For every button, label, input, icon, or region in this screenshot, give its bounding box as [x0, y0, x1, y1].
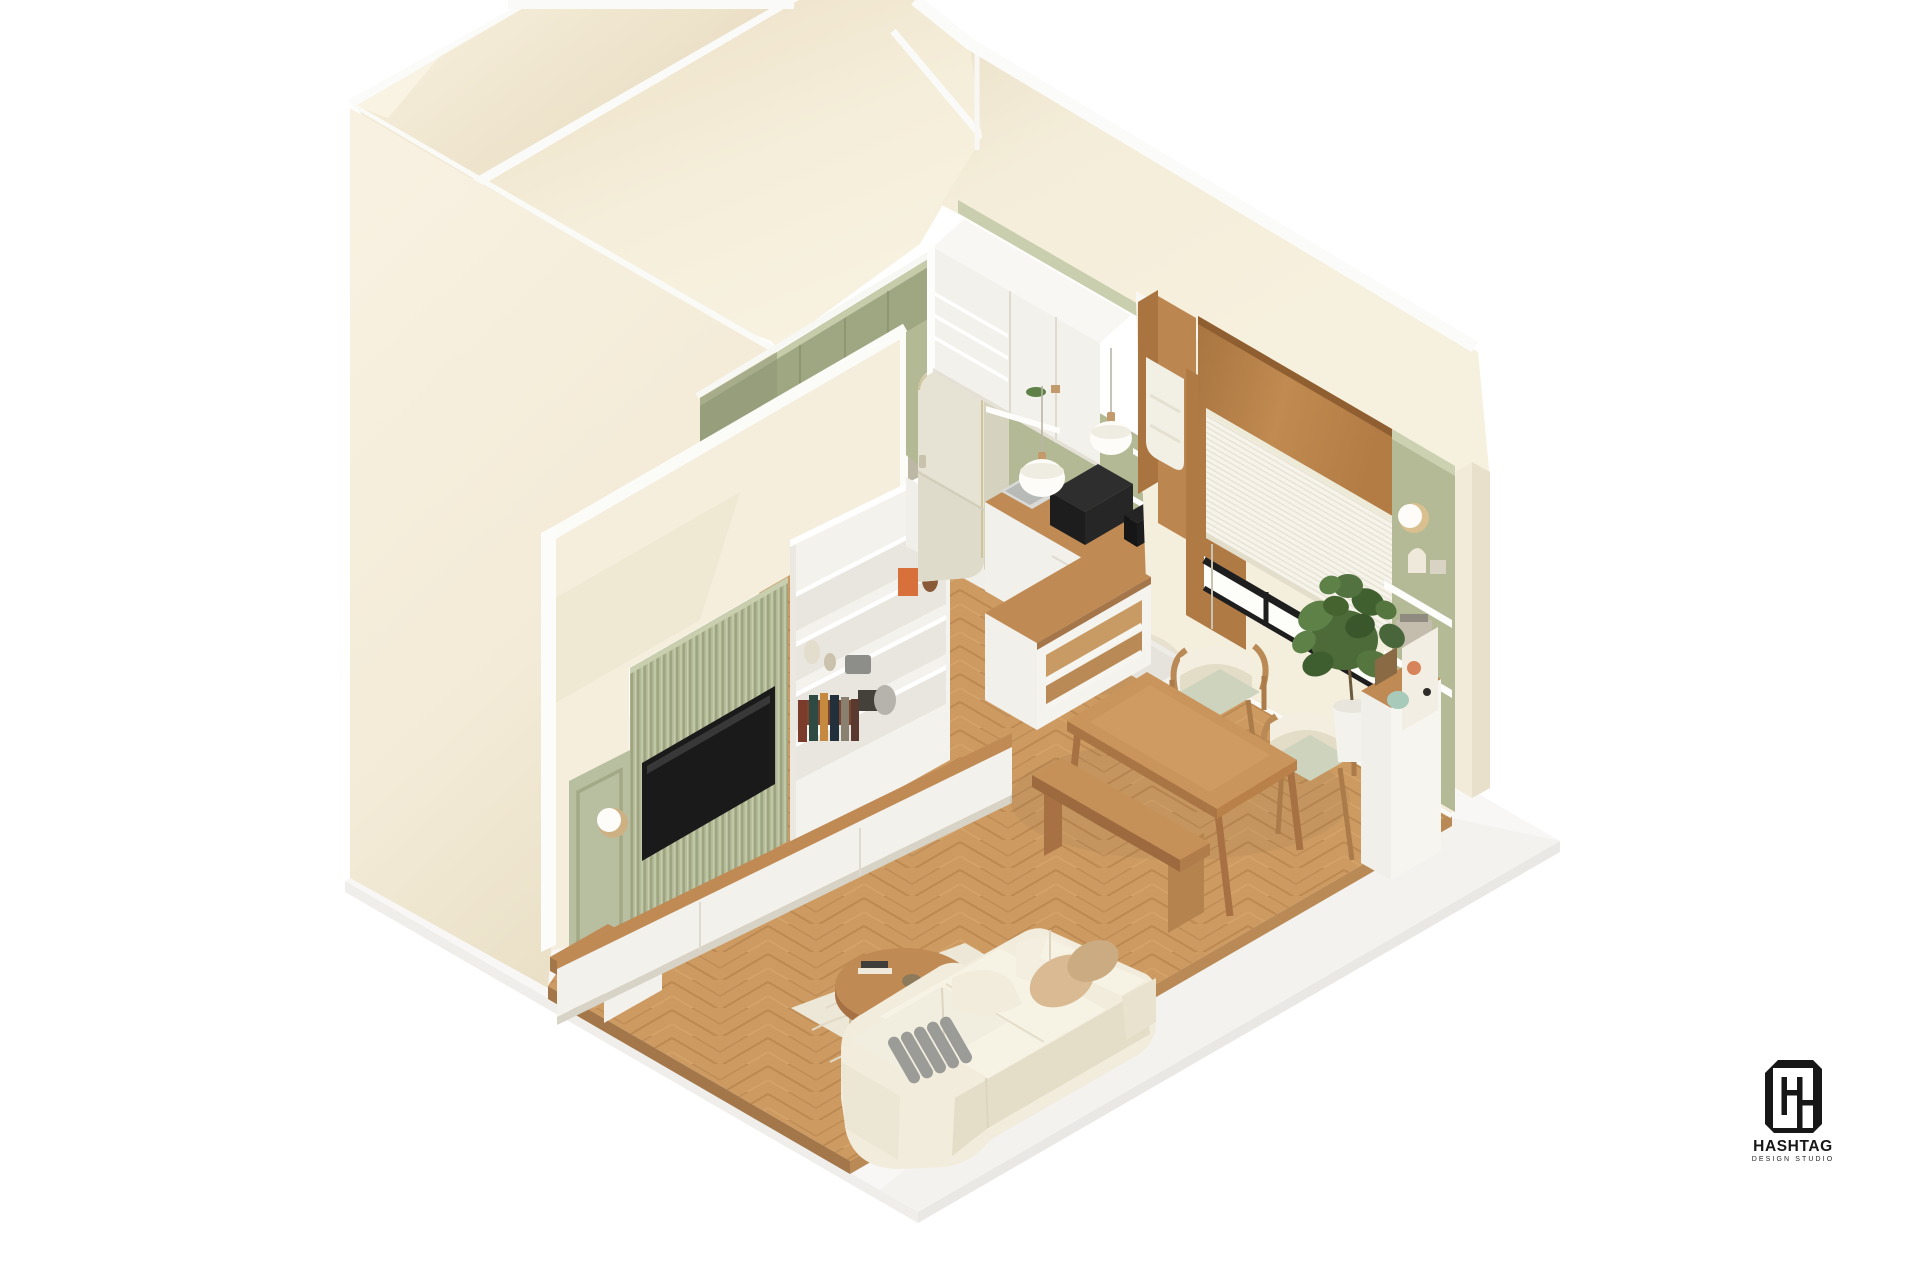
svg-text:DESIGN STUDIO: DESIGN STUDIO	[1752, 1156, 1835, 1163]
svg-text:HASHTAG: HASHTAG	[1753, 1138, 1833, 1155]
